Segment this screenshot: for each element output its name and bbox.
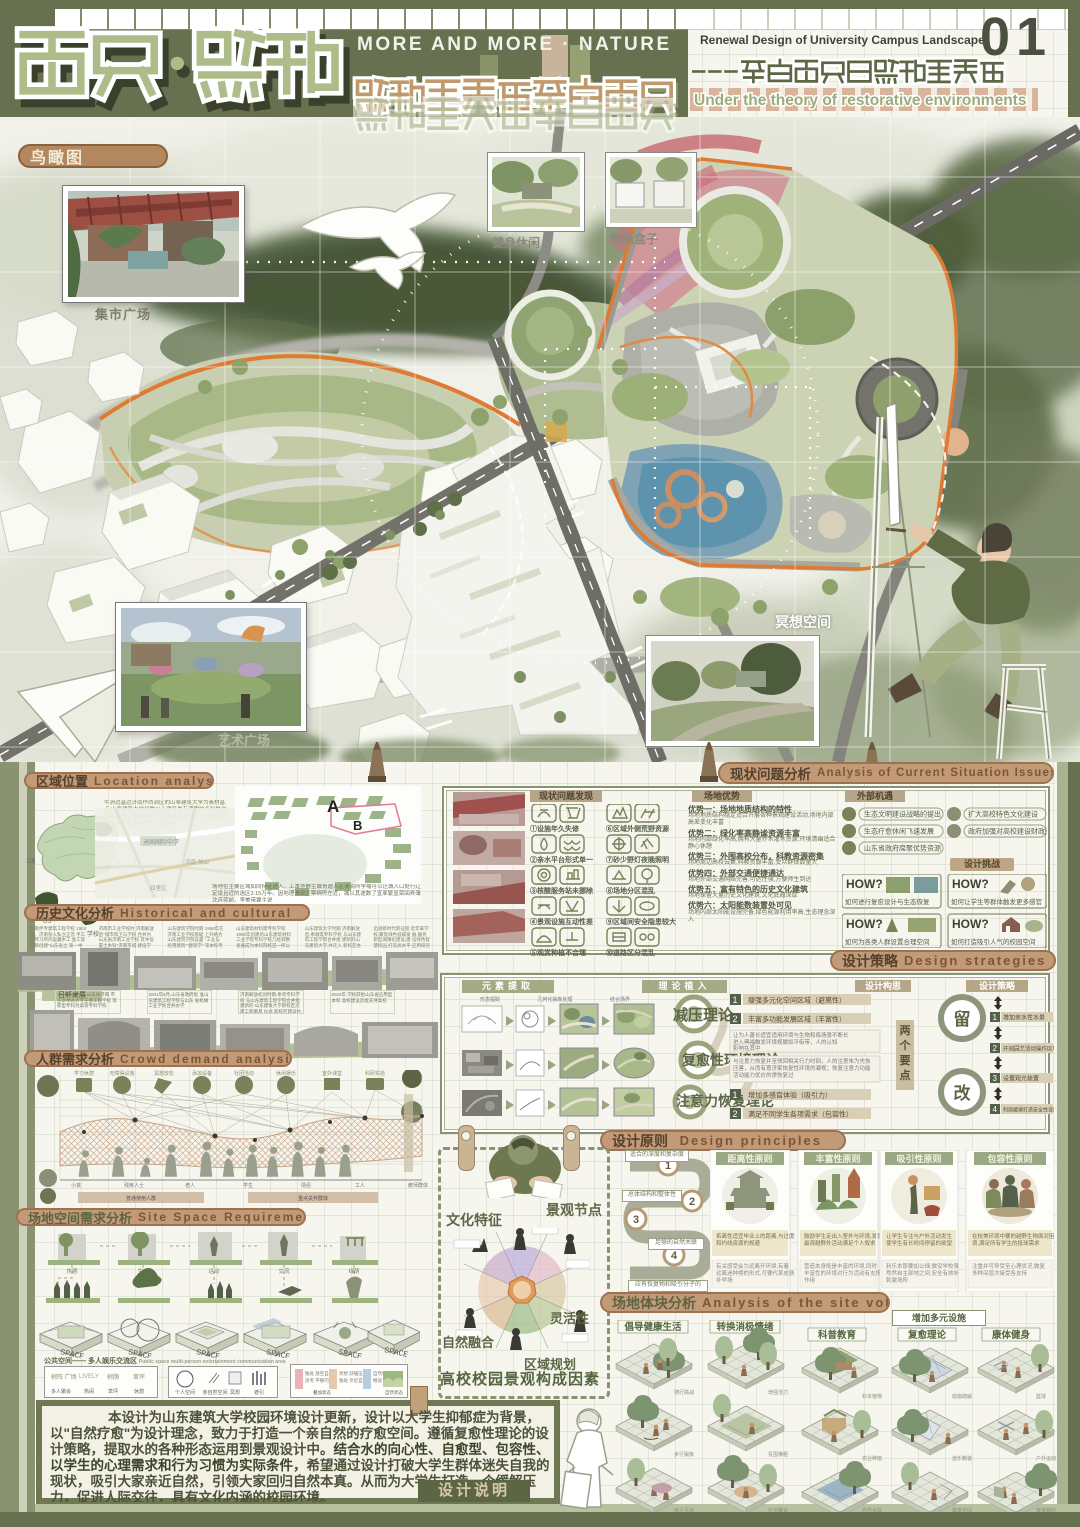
svg-text:休憩: 休憩 bbox=[134, 1388, 144, 1395]
svg-text:4: 4 bbox=[993, 1105, 998, 1114]
svg-text:设置观光装置: 设置观光装置 bbox=[1003, 1075, 1039, 1083]
svg-text:和约线资源的规避: 和约线资源的规避 bbox=[716, 1239, 761, 1247]
svg-text:科普教育: 科普教育 bbox=[818, 1329, 857, 1341]
svg-text:草坪: 草坪 bbox=[108, 1388, 118, 1395]
svg-text:⑥区域外侧荒野资源: ⑥区域外侧荒野资源 bbox=[606, 824, 669, 833]
svg-text:树荫: 树荫 bbox=[107, 1373, 119, 1381]
svg-text:1: 1 bbox=[993, 1013, 998, 1022]
svg-text:3: 3 bbox=[993, 1074, 998, 1083]
svg-text:冥想放松: 冥想放松 bbox=[154, 1070, 174, 1077]
svg-text:丰富性的环境对行为活动有支撑: 丰富性的环境对行为活动有支撑 bbox=[804, 1269, 882, 1277]
svg-text:①设施年久失修: ①设施年久失修 bbox=[530, 824, 580, 833]
svg-text:HOW?: HOW? bbox=[846, 877, 883, 891]
svg-text:进入典福触发环境视躺如平街带，人的认知: 进入典福触发环境视躺如平街带，人的认知 bbox=[733, 1038, 838, 1046]
svg-text:留: 留 bbox=[954, 1009, 971, 1029]
svg-text:教师群体: 教师群体 bbox=[408, 1182, 428, 1189]
svg-text:重点关怀群体: 重点关怀群体 bbox=[298, 1195, 328, 1202]
svg-text:休闲娱乐: 休闲娱乐 bbox=[276, 1070, 296, 1077]
svg-text:自然状态: 自然状态 bbox=[385, 1389, 403, 1396]
svg-text:B: B bbox=[353, 818, 362, 833]
svg-text:无障碍设施: 无障碍设施 bbox=[109, 1070, 134, 1077]
svg-text:④景观设施互动性差: ④景观设施互动性差 bbox=[530, 917, 593, 926]
svg-text:树阵 广场: 树阵 广场 bbox=[51, 1373, 77, 1381]
svg-text:与注意力恢复并至领回相关行力时刻，人的注意朱为先恢: 与注意力恢复并至领回相关行力时刻，人的注意朱为先恢 bbox=[733, 1057, 871, 1065]
svg-text:科本植物: 科本植物 bbox=[862, 1393, 882, 1400]
svg-text:复愈理论: 复愈理论 bbox=[907, 1329, 947, 1341]
svg-text:如何为各类人群设置合理空间: 如何为各类人群设置合理空间 bbox=[845, 937, 930, 946]
svg-text:多人聚会: 多人聚会 bbox=[51, 1388, 71, 1395]
svg-text:⑩道路区分混乱: ⑩道路区分混乱 bbox=[606, 948, 655, 957]
svg-text:吸引性原则: 吸引性原则 bbox=[896, 1153, 941, 1164]
svg-text:满足不同学生各项需求（包容性）: 满足不同学生各项需求（包容性） bbox=[748, 1110, 853, 1119]
svg-text:形态提取: 形态提取 bbox=[480, 996, 500, 1003]
svg-text:情侣: 情侣 bbox=[301, 1182, 311, 1189]
svg-text:CB: CB bbox=[27, 859, 35, 865]
svg-text:老人: 老人 bbox=[185, 1182, 195, 1189]
svg-text:康体健身: 康体健身 bbox=[991, 1329, 1031, 1341]
svg-text:利乐本那要加公绿,做没学校虽: 利乐本那要加公绿,做没学校虽 bbox=[886, 1262, 960, 1270]
svg-text:结合场界: 结合场界 bbox=[610, 996, 630, 1003]
svg-text:科研实验: 科研实验 bbox=[365, 1070, 385, 1077]
svg-text:在校美环境中要的越野生物面对困: 在校美环境中要的越野生物面对困 bbox=[972, 1232, 1054, 1240]
svg-text:扩大高校特色文化建设: 扩大高校特色文化建设 bbox=[968, 810, 1038, 819]
svg-text:使学生有长时间停留的欲望: 使学生有长时间停留的欲望 bbox=[886, 1239, 953, 1247]
svg-text:康复空间: 康复空间 bbox=[952, 1507, 972, 1512]
svg-text:工人: 工人 bbox=[355, 1183, 365, 1189]
svg-text:山东省政府席聚优势资源: 山东省政府席聚优势资源 bbox=[864, 844, 941, 853]
svg-text:⑦砂少野灯夜晚照明: ⑦砂少野灯夜晚照明 bbox=[606, 855, 669, 864]
svg-text:⑨区域间安全隐患较大: ⑨区域间安全隐患较大 bbox=[606, 917, 676, 926]
svg-text:2: 2 bbox=[689, 1196, 695, 1208]
svg-text:3: 3 bbox=[633, 1214, 639, 1226]
svg-text:补早场: 补早场 bbox=[716, 1276, 733, 1284]
svg-text:增加亲水性水景: 增加亲水性水景 bbox=[1003, 1014, 1045, 1022]
svg-text:瑜伽疏解: 瑜伽疏解 bbox=[952, 1393, 972, 1400]
svg-text:草坪: 草坪 bbox=[133, 1373, 145, 1381]
svg-text:氛围横租: 氛围横租 bbox=[768, 1451, 788, 1458]
svg-text:⑧场地分区混乱: ⑧场地分区混乱 bbox=[606, 886, 655, 895]
svg-text:热闹: 热闹 bbox=[84, 1388, 94, 1395]
svg-text:鼓励学生走出入室外与环境,发现: 鼓励学生走出入室外与环境,发现 bbox=[804, 1232, 883, 1240]
svg-text:让学生专注与户外活动发生: 让学生专注与户外活动发生 bbox=[886, 1232, 953, 1240]
svg-text:HOW?: HOW? bbox=[952, 877, 989, 891]
svg-text:⑤观赏种植不合理: ⑤观赏种植不合理 bbox=[530, 948, 586, 957]
svg-text:小孩: 小孩 bbox=[71, 1182, 81, 1189]
svg-text:境,满足所有学生的投球需求: 境,满足所有学生的投球需求 bbox=[972, 1239, 1040, 1247]
svg-text:拓离性适宜毕业上的距离,与过度: 拓离性适宜毕业上的距离,与过度 bbox=[716, 1232, 795, 1240]
svg-text:1: 1 bbox=[733, 1090, 738, 1100]
svg-text:刺激场所: 刺激场所 bbox=[886, 1276, 909, 1284]
svg-text:开阔园艺活动操作区域: 开阔园艺活动操作区域 bbox=[1003, 1045, 1054, 1053]
svg-text:距离性原则: 距离性原则 bbox=[727, 1153, 772, 1164]
svg-text:注重并可导受至心理状况,做复: 注重并可导受至心理状况,做复 bbox=[972, 1262, 1046, 1270]
svg-text:改: 改 bbox=[954, 1083, 972, 1103]
svg-text:HOW?: HOW? bbox=[846, 917, 883, 931]
svg-text:骑行挑战: 骑行挑战 bbox=[674, 1389, 694, 1396]
svg-text:步行锻炼: 步行锻炼 bbox=[674, 1451, 694, 1458]
svg-text:生态疗愈休闲飞速发展: 生态疗愈休闲飞速发展 bbox=[864, 827, 934, 836]
svg-text:营造本身既是丰富的环境,同时: 营造本身既是丰富的环境,同时 bbox=[804, 1262, 878, 1270]
svg-text:普通使用人群: 普通使用人群 bbox=[126, 1195, 156, 1202]
svg-text:亲自然空间: 亲自然空间 bbox=[202, 1389, 227, 1396]
svg-text:2: 2 bbox=[993, 1044, 998, 1053]
svg-text:生态文明建设战略的提出: 生态文明建设战略的提出 bbox=[864, 810, 941, 819]
svg-text:丰富性原则: 丰富性原则 bbox=[815, 1153, 860, 1164]
svg-text:社交聚会: 社交聚会 bbox=[768, 1507, 788, 1512]
svg-text:如何让学生等群体触发更多感官: 如何让学生等群体触发更多感官 bbox=[951, 897, 1042, 906]
svg-text:③核酸服务站未挪除: ③核酸服务站未挪除 bbox=[530, 886, 594, 895]
svg-text:农业种植: 农业种植 bbox=[862, 1455, 882, 1462]
svg-text:遮引: 遮引 bbox=[254, 1389, 264, 1396]
svg-text:学习休憩: 学习休憩 bbox=[74, 1070, 94, 1077]
svg-text:多种深层次接受各支持: 多种深层次接受各支持 bbox=[972, 1269, 1028, 1277]
svg-text:篮球: 篮球 bbox=[1036, 1393, 1046, 1400]
svg-text:远离迷种榜的形式,可要代某皮肤: 远离迷种榜的形式,可要代某皮肤 bbox=[716, 1269, 795, 1277]
svg-text:个人空间: 个人空间 bbox=[175, 1389, 195, 1396]
svg-text:然然自主部地之间,安全有效补: 然然自主部地之间,安全有效补 bbox=[886, 1269, 960, 1277]
svg-text:途乐教装: 途乐教装 bbox=[952, 1455, 972, 1462]
svg-text:2: 2 bbox=[733, 1109, 738, 1119]
svg-text:自然水体: 自然水体 bbox=[862, 1507, 882, 1512]
svg-text:社团活动: 社团活动 bbox=[234, 1070, 254, 1077]
svg-text:亲子互动: 亲子互动 bbox=[674, 1507, 694, 1512]
svg-text:利用缓坡打造安全性设施: 利用缓坡打造安全性设施 bbox=[1003, 1107, 1054, 1114]
svg-text:包容性原则: 包容性原则 bbox=[986, 1153, 1032, 1164]
svg-text:HOW?: HOW? bbox=[952, 917, 989, 931]
svg-text:四里区: 四里区 bbox=[150, 885, 167, 892]
svg-text:几何化抽象处理: 几何化抽象处理 bbox=[537, 996, 572, 1003]
svg-text:2: 2 bbox=[733, 1014, 738, 1024]
svg-text:1: 1 bbox=[733, 995, 738, 1005]
svg-text:室外课堂: 室外课堂 bbox=[322, 1070, 342, 1077]
svg-text:济南·快山: 济南·快山 bbox=[185, 858, 209, 866]
svg-text:A: A bbox=[327, 797, 339, 816]
svg-text:残疾人士: 残疾人士 bbox=[124, 1182, 144, 1189]
svg-text:②亲水平台形式单一: ②亲水平台形式单一 bbox=[530, 855, 593, 864]
svg-text:迪国国际中学: 迪国国际中学 bbox=[143, 838, 179, 846]
svg-text:LIVELY: LIVELY bbox=[79, 1374, 99, 1380]
svg-text:叠加状态: 叠加状态 bbox=[313, 1389, 331, 1396]
svg-text:健身器材: 健身器材 bbox=[1036, 1507, 1056, 1512]
svg-text:作用: 作用 bbox=[804, 1276, 815, 1284]
svg-text:如何打造吸引人气的校园空间: 如何打造吸引人气的校园空间 bbox=[951, 937, 1036, 946]
svg-text:冥想: 冥想 bbox=[230, 1389, 240, 1396]
svg-text:4: 4 bbox=[671, 1250, 678, 1262]
svg-text:最观越野外活动满足个人叙求: 最观越野外活动满足个人叙求 bbox=[804, 1239, 876, 1247]
svg-text:有关感受会为远离开环境,有着: 有关感受会为远离开环境,有着 bbox=[716, 1262, 790, 1270]
svg-text:活动能力优价的渗恢复过: 活动能力优价的渗恢复过 bbox=[733, 1071, 794, 1079]
svg-text:学生: 学生 bbox=[243, 1182, 253, 1189]
svg-text:丰富多功能发展区域（丰富性）: 丰富多功能发展区域（丰富性） bbox=[748, 1015, 846, 1024]
svg-text:倡导健康生活: 倡导健康生活 bbox=[623, 1321, 682, 1333]
svg-text:政府加强对高校建设财政支持: 政府加强对高校建设财政支持 bbox=[968, 827, 1047, 836]
svg-text:压害，从而有意济家恢复性环境的凝视；恢复注意力功能: 压害，从而有意济家恢复性环境的凝视；恢复注意力功能 bbox=[733, 1064, 871, 1072]
svg-text:户外运动: 户外运动 bbox=[1036, 1455, 1056, 1462]
svg-text:影响在其中: 影响在其中 bbox=[733, 1044, 761, 1052]
svg-text:添加设备: 添加设备 bbox=[192, 1070, 212, 1077]
svg-text:让为人善长适宜适用环境与生物和临场景不断长: 让为人善长适宜适用环境与生物和临场景不断长 bbox=[733, 1031, 849, 1039]
svg-text:增加多感官体验（吸引力）: 增加多感官体验（吸引力） bbox=[748, 1091, 832, 1100]
svg-text:瘦强多元化空间区域（避离性）: 瘦强多元化空间区域（避离性） bbox=[748, 996, 846, 1005]
svg-text:增强活力: 增强活力 bbox=[768, 1389, 788, 1396]
svg-text:如何进行复愈设计与生态恢复: 如何进行复愈设计与生态恢复 bbox=[845, 897, 930, 906]
